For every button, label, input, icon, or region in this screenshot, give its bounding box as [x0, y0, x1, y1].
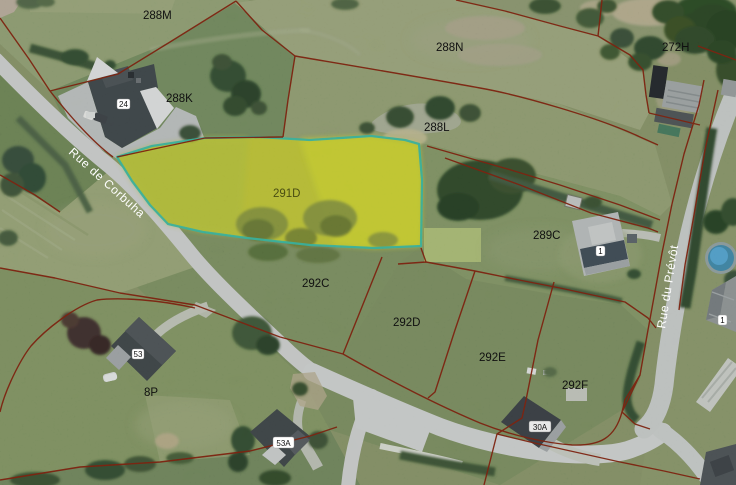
svg-text:1: 1: [598, 247, 603, 256]
svg-text:289C: 289C: [533, 230, 561, 242]
svg-text:291D: 291D: [273, 188, 301, 200]
svg-text:272H: 272H: [662, 42, 690, 54]
svg-text:292D: 292D: [393, 317, 421, 329]
svg-text:8P: 8P: [144, 387, 158, 399]
svg-text:288M: 288M: [143, 10, 172, 22]
svg-text:292E: 292E: [479, 352, 506, 364]
svg-text:288L: 288L: [424, 122, 450, 134]
svg-text:24: 24: [119, 100, 128, 109]
svg-text:292F: 292F: [562, 380, 588, 392]
svg-text:53A: 53A: [276, 439, 291, 448]
svg-text:30A: 30A: [533, 423, 548, 432]
svg-text:292C: 292C: [302, 278, 330, 290]
svg-text:288N: 288N: [436, 42, 464, 54]
svg-text:288K: 288K: [166, 93, 193, 105]
svg-text:1: 1: [720, 316, 725, 325]
svg-text:53: 53: [134, 350, 143, 359]
